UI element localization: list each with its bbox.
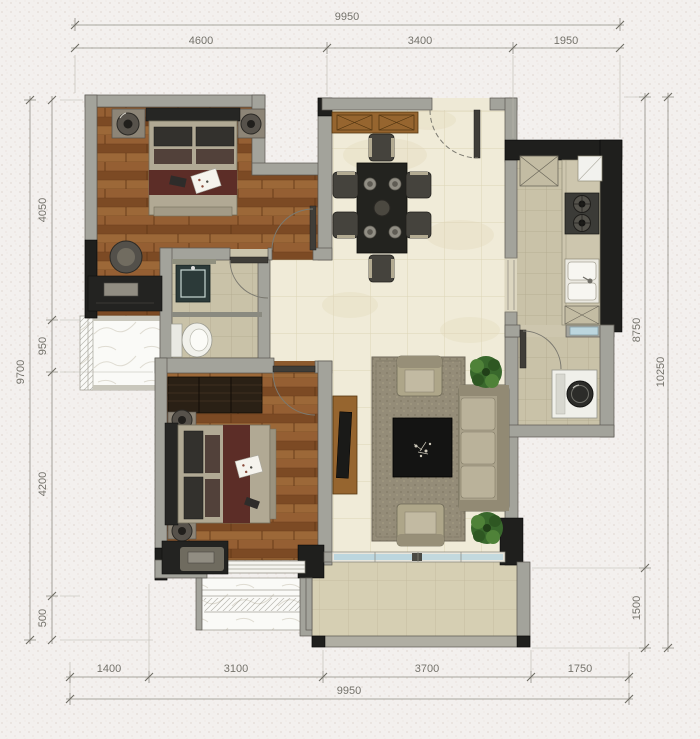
wardrobe [168,377,262,413]
dim-label-bottom-overall: 9950 [337,685,361,697]
dim-label-left-seg3: 4200 [37,472,49,496]
floor-plan-page: 9950 4600 3400 1950 1400 3100 3700 1750 … [0,0,700,739]
dim-label-right-seg2: 1500 [631,596,643,620]
dim-label-top-overall: 9950 [335,11,359,23]
balcony-rail [312,636,530,647]
master-bed [146,108,240,216]
dim-label-bottom-seg1: 1400 [97,663,121,675]
bedroom2-desk [162,541,228,574]
floor-plan-drawing: 9950 4600 3400 1950 1400 3100 3700 1750 … [0,0,700,739]
nightstand-right [238,109,265,138]
left-bay-window [80,316,160,390]
dim-label-left-seg4: 500 [37,609,49,627]
kitchen-threshold [505,258,517,312]
sideboard [332,112,418,133]
dim-label-left-seg2: 950 [37,337,49,355]
dim-label-bottom-seg2: 3100 [224,663,248,675]
kitchen-sink [565,259,599,303]
dim-label-bottom-seg3: 3700 [415,663,439,675]
coffee-table [393,418,452,477]
washbasin [176,265,210,302]
bathroom-divider [172,312,262,317]
entry-threshold [432,98,490,110]
balcony-sliding-door [332,552,505,562]
dim-label-left-overall: 9700 [15,360,27,384]
utility-fixtures [552,370,597,418]
dim-label-bottom-seg4: 1750 [568,663,592,675]
dim-label-right-seg1: 8750 [631,318,643,342]
armchair-top [397,356,442,396]
toilet [171,323,212,357]
bedroom1-chair [110,241,142,273]
bed-2 [165,423,276,525]
armchair-bottom [397,504,444,546]
nightstand-left [112,109,145,138]
bedroom2-bay-window [200,578,312,630]
bedroom1-desk [88,276,162,311]
dim-label-right-overall: 10250 [655,357,667,388]
plant-bottom [471,512,503,544]
centerpiece [374,200,390,216]
utility-window [570,327,598,335]
plant-top [470,356,502,388]
sofa [459,385,509,511]
tv-console [333,396,357,494]
balcony-floor [312,562,517,636]
dim-label-top-seg2: 3400 [408,35,432,47]
corner-unit [578,156,602,181]
stove [565,193,599,234]
fridge-cabinet [520,156,558,186]
dim-label-top-seg3: 1950 [554,35,578,47]
dim-label-left-seg1: 4050 [37,198,49,222]
dim-label-top-seg1: 4600 [189,35,213,47]
washing-machine [552,370,597,418]
bathroom-shelf [172,259,216,264]
base-cabinet [565,306,599,324]
